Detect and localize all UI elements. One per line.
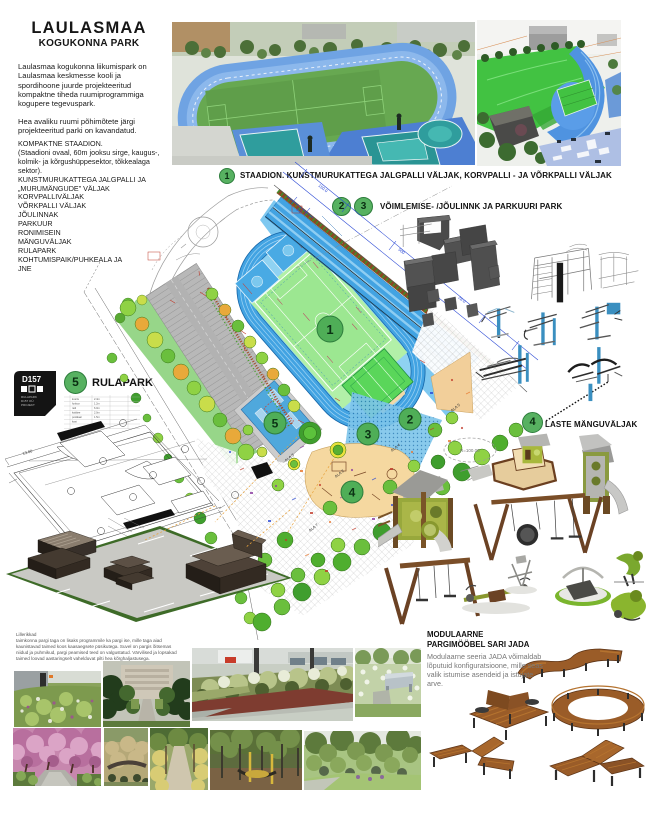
svg-text:R=100.00: R=100.00	[460, 448, 480, 453]
svg-text:13.00: 13.00	[22, 448, 34, 456]
svg-text:150.0: 150.0	[317, 183, 329, 194]
svg-text:6.0m: 6.0m	[94, 406, 100, 410]
svg-text:funbox: funbox	[72, 402, 80, 406]
svg-text:2.4m: 2.4m	[94, 397, 100, 401]
svg-text:2.0m: 2.0m	[94, 411, 100, 415]
svg-text:3: 3	[365, 428, 372, 442]
svg-text:2: 2	[407, 413, 414, 427]
svg-text:1.2m: 1.2m	[94, 402, 100, 406]
svg-text:D157: D157	[22, 375, 42, 384]
svg-text:kvarts: kvarts	[72, 397, 80, 401]
svg-text:4: 4	[349, 486, 356, 500]
svg-text:kaldtee: kaldtee	[72, 411, 81, 415]
svg-text:raili: raili	[72, 406, 76, 410]
svg-text:PROJEKT: PROJEKT	[21, 403, 35, 407]
svg-text:1: 1	[326, 322, 333, 337]
